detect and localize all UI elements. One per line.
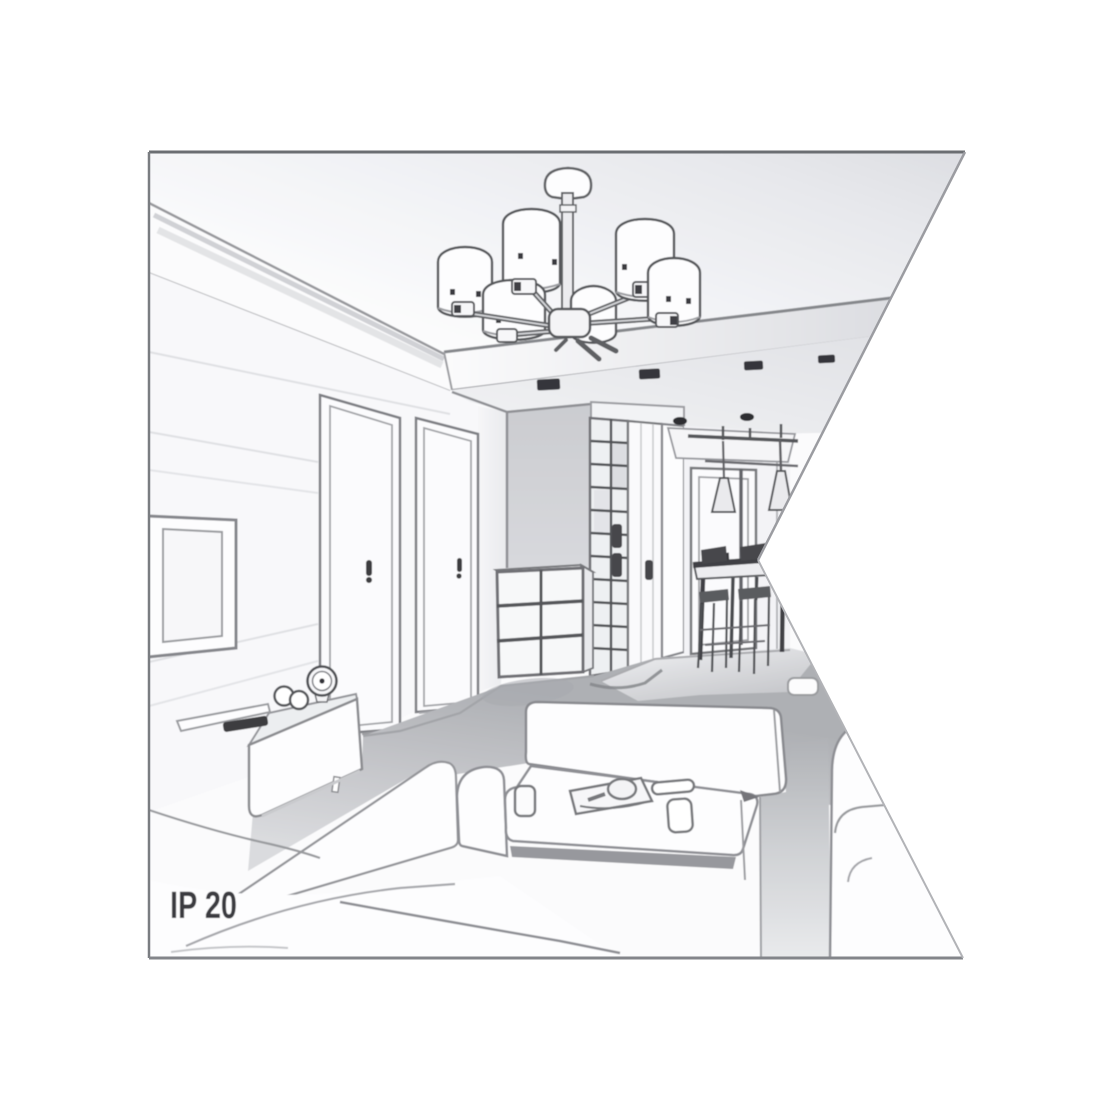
- svg-text:IP 20: IP 20: [170, 885, 237, 927]
